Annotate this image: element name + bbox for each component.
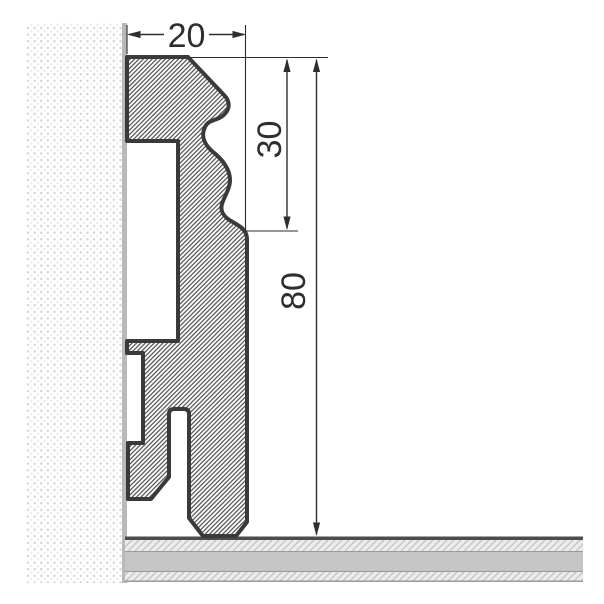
- floor-layer-bottom-hatch: [125, 572, 583, 581]
- floor-bottom-border: [125, 581, 583, 583]
- floor-top-border: [125, 537, 583, 541]
- dimension-label-total-height: 80: [275, 272, 313, 310]
- floor-layer-divider-lower: [125, 571, 583, 572]
- floor-layer-divider-upper: [125, 551, 583, 552]
- dimension-label-upper-height: 30: [251, 121, 289, 159]
- floor-layer-core: [125, 552, 583, 571]
- floor-layer-top-hatch: [125, 540, 583, 551]
- dimension-label-width: 20: [168, 17, 206, 55]
- floor: [125, 537, 583, 583]
- wall: [26, 23, 127, 583]
- wall-texture: [26, 23, 122, 583]
- skirting-profile-drawing: 20 30 80: [0, 0, 604, 604]
- technical-drawing-canvas: 20 30 80: [0, 0, 604, 604]
